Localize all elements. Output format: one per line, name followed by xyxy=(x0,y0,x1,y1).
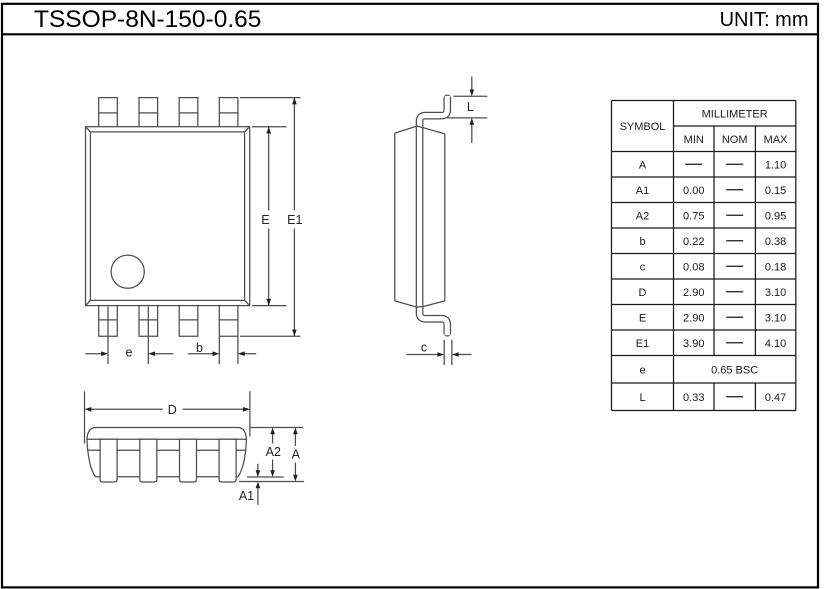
svg-text:MILLIMETER: MILLIMETER xyxy=(702,108,768,120)
svg-text:NOM: NOM xyxy=(722,134,748,146)
svg-text:E1: E1 xyxy=(636,338,649,350)
svg-text:b: b xyxy=(196,341,203,355)
svg-text:2.90: 2.90 xyxy=(683,287,704,299)
svg-text:SYMBOL: SYMBOL xyxy=(620,121,666,133)
svg-text:0.15: 0.15 xyxy=(765,185,786,197)
svg-text:A1: A1 xyxy=(239,489,254,503)
svg-text:4.10: 4.10 xyxy=(765,338,786,350)
svg-text:E: E xyxy=(261,213,269,227)
svg-text:L: L xyxy=(639,392,645,404)
svg-text:3.10: 3.10 xyxy=(765,287,786,299)
svg-text:UNIT: mm: UNIT: mm xyxy=(720,9,809,31)
svg-text:A: A xyxy=(292,448,301,462)
svg-text:1.10: 1.10 xyxy=(765,159,786,171)
svg-text:0.95: 0.95 xyxy=(765,210,786,222)
svg-text:0.65 BSC: 0.65 BSC xyxy=(711,364,758,376)
svg-text:0.38: 0.38 xyxy=(765,236,786,248)
svg-text:0.47: 0.47 xyxy=(765,392,786,404)
svg-text:0.00: 0.00 xyxy=(683,185,704,197)
svg-text:D: D xyxy=(168,403,177,417)
svg-text:c: c xyxy=(421,341,427,355)
svg-text:A: A xyxy=(639,159,647,171)
svg-text:3.90: 3.90 xyxy=(683,338,704,350)
svg-text:0.75: 0.75 xyxy=(683,210,704,222)
svg-text:3.10: 3.10 xyxy=(765,312,786,324)
svg-text:A2: A2 xyxy=(266,445,281,459)
svg-text:L: L xyxy=(467,100,474,114)
svg-text:E: E xyxy=(639,312,646,324)
svg-text:MAX: MAX xyxy=(764,134,789,146)
svg-text:c: c xyxy=(640,261,646,273)
svg-text:0.22: 0.22 xyxy=(683,236,704,248)
svg-text:0.18: 0.18 xyxy=(765,261,786,273)
svg-text:b: b xyxy=(639,236,645,248)
svg-text:2.90: 2.90 xyxy=(683,312,704,324)
svg-text:MIN: MIN xyxy=(684,134,704,146)
svg-text:E1: E1 xyxy=(287,213,302,227)
svg-text:A2: A2 xyxy=(636,210,649,222)
svg-text:D: D xyxy=(639,287,647,299)
svg-text:TSSOP-8N-150-0.65: TSSOP-8N-150-0.65 xyxy=(34,6,261,33)
svg-text:e: e xyxy=(126,345,133,359)
svg-text:0.33: 0.33 xyxy=(683,392,704,404)
svg-text:A1: A1 xyxy=(636,185,649,197)
svg-text:0.08: 0.08 xyxy=(683,261,704,273)
svg-text:e: e xyxy=(639,364,645,376)
